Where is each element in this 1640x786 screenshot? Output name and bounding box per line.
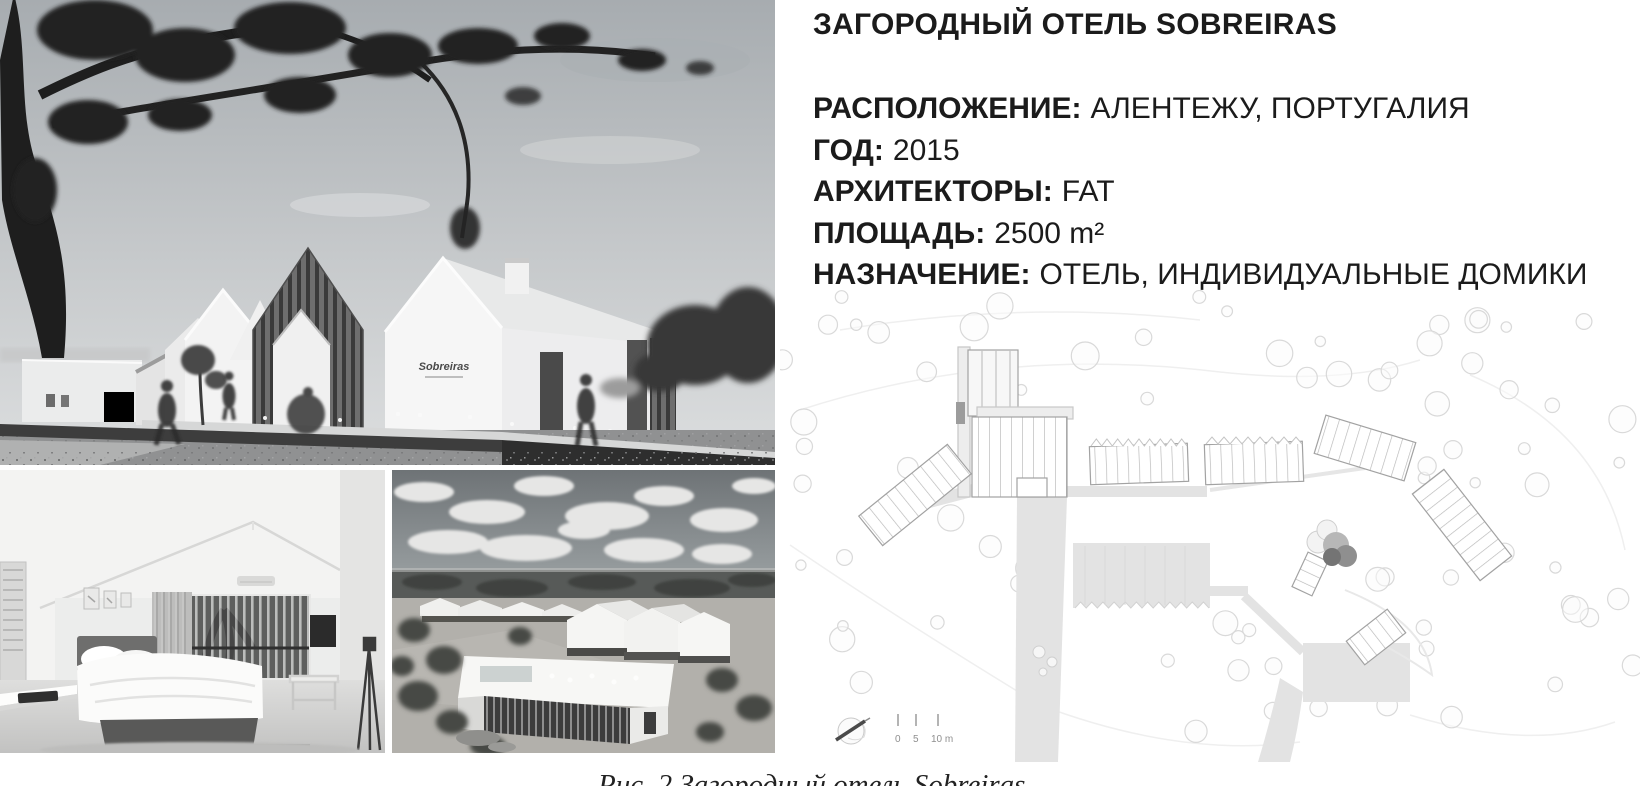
field-value: FAT: [1062, 175, 1115, 208]
info-line-area: ПЛОЩАДЬ:2500 m²: [813, 213, 1587, 255]
scale-label-0: 0: [895, 734, 901, 745]
field-value: АЛЕНТЕЖУ, ПОРТУГАЛИЯ: [1090, 92, 1469, 125]
info-line-year: ГОД:2015: [813, 130, 1587, 172]
field-value: 2015: [893, 134, 960, 167]
document-page: Sobreiras: [0, 0, 1640, 786]
site-plan-drawing: 0 5 10 m: [780, 290, 1640, 765]
info-line-location: РАСПОЛОЖЕНИЕ:АЛЕНТЕЖУ, ПОРТУГАЛИЯ: [813, 88, 1587, 130]
flat-roof-building: [458, 656, 674, 744]
field-label: РАСПОЛОЖЕНИЕ:: [813, 92, 1081, 125]
plan-paths: [930, 484, 1410, 762]
field-label: НАЗНАЧЕНИЕ:: [813, 258, 1031, 291]
photo-hotel-facade: Sobreiras: [0, 0, 775, 465]
field-label: ГОД:: [813, 134, 884, 167]
field-label: АРХИТЕКТОРЫ:: [813, 175, 1053, 208]
page-title: ЗАГОРОДНЫЙ ОТЕЛЬ SOBREIRAS: [813, 8, 1337, 42]
photo-room-interior: [0, 470, 385, 753]
compass-icon: [836, 718, 870, 744]
photo-aerial-view: [392, 470, 775, 753]
scale-label-5: 5: [913, 734, 919, 745]
field-value: ОТЕЛЬ, ИНДИВИДУАЛЬНЫЕ ДОМИКИ: [1040, 258, 1588, 291]
hotel-facade-illustration: Sobreiras: [0, 0, 775, 465]
scale-label-10m: 10 m: [931, 734, 953, 745]
row-roof-zigzag: [1091, 439, 1187, 446]
info-line-architects: АРХИТЕКТОРЫ:FAT: [813, 171, 1587, 213]
info-fields: РАСПОЛОЖЕНИЕ:АЛЕНТЕЖУ, ПОРТУГАЛИЯ ГОД:20…: [813, 88, 1587, 296]
field-label: ПЛОЩАДЬ:: [813, 217, 985, 250]
room-interior-illustration: [0, 470, 385, 753]
hotel-sign-text: Sobreiras: [419, 361, 470, 373]
side-window: [0, 562, 26, 682]
site-plan-svg: 0 5 10 m: [780, 290, 1640, 765]
tv-screen: [310, 615, 336, 647]
plan-path-link: [1244, 596, 1303, 652]
scale-bar: 0 5 10 m: [895, 714, 953, 745]
field-value: 2500 m²: [994, 217, 1104, 250]
aerial-view-illustration: [392, 470, 775, 753]
figure-caption: Рис. 2 Загородный отель Sobreiras: [598, 769, 1025, 786]
contour-lines: [790, 312, 1625, 746]
